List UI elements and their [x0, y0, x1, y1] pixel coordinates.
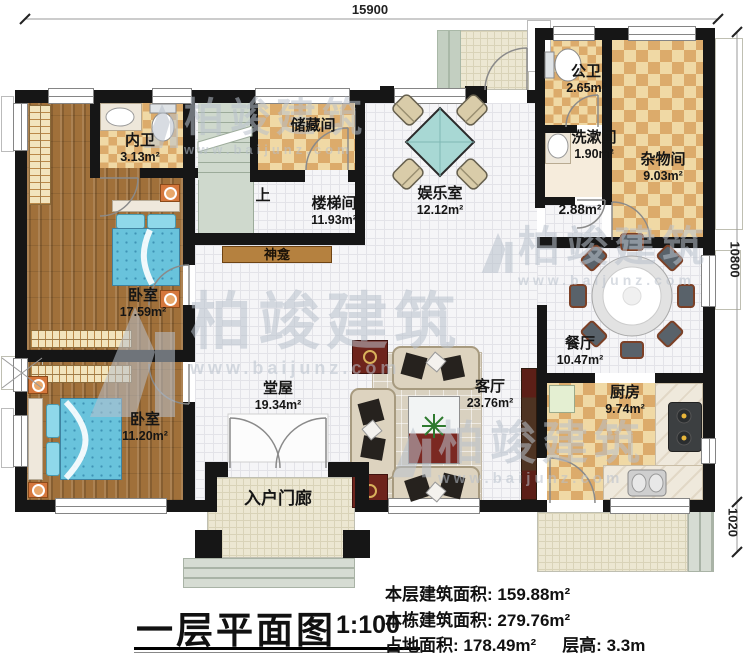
room-label-neiwei: 内卫3.13m²	[95, 133, 185, 164]
floor-plan-canvas: 神龛	[0, 0, 750, 659]
door-gongwei	[566, 95, 598, 127]
game-table-set	[391, 93, 489, 191]
stat-footprint-height: 占地面积: 178.49m²层高: 3.3m	[385, 631, 645, 656]
door-terrace	[485, 48, 527, 90]
sofa-cushions	[358, 352, 466, 502]
area-label-corridor: 2.88m²	[545, 202, 615, 218]
dim-right-lower: 1020	[726, 501, 741, 545]
drawing-overlay	[0, 0, 750, 659]
room-label-bedroom1: 卧室17.59m²	[93, 288, 193, 319]
room-label-bedroom2: 卧室11.20m²	[95, 412, 195, 443]
title-underline	[134, 647, 420, 650]
door-neiwei	[100, 178, 138, 216]
title-underline-thin	[134, 652, 420, 653]
room-label-gongwei: 公卫2.65m²	[546, 64, 626, 95]
sink	[106, 108, 134, 126]
dim-top: 15900	[330, 2, 410, 17]
door-bedroom2	[149, 364, 189, 404]
stairs-break-line	[198, 126, 252, 152]
room-label-chucangjian: 储藏间	[263, 118, 363, 135]
room-label-zawujian: 杂物间9.03m²	[613, 152, 713, 183]
room-label-porch: 入户门廊	[208, 490, 348, 509]
room-label-yuleshi: 娱乐室12.12m²	[390, 186, 490, 217]
room-label-loutijian: 楼梯间11.93m²	[284, 196, 384, 227]
bed-fold	[66, 402, 86, 478]
bed-fold	[144, 230, 152, 284]
door-kitchen	[550, 458, 595, 503]
room-label-canting: 餐厅10.47m²	[530, 336, 630, 367]
room-label-tangwu: 堂屋19.34m²	[228, 381, 328, 412]
stairs-up-label: 上	[248, 188, 278, 205]
ac-platform-cross	[2, 358, 42, 388]
stat-building-area: 本栋建筑面积: 279.76m²	[385, 606, 570, 631]
plan-title: 一层平面图	[136, 600, 336, 654]
room-label-keting: 客厅23.76m²	[440, 379, 540, 410]
dim-right: 10800	[728, 232, 743, 288]
plant	[422, 414, 446, 438]
kitchen-sink	[628, 470, 666, 496]
room-label-chufang: 厨房9.74m²	[575, 385, 675, 416]
stove-burners	[677, 409, 691, 445]
stat-floor-area: 本层建筑面积: 159.88m²	[385, 580, 570, 605]
